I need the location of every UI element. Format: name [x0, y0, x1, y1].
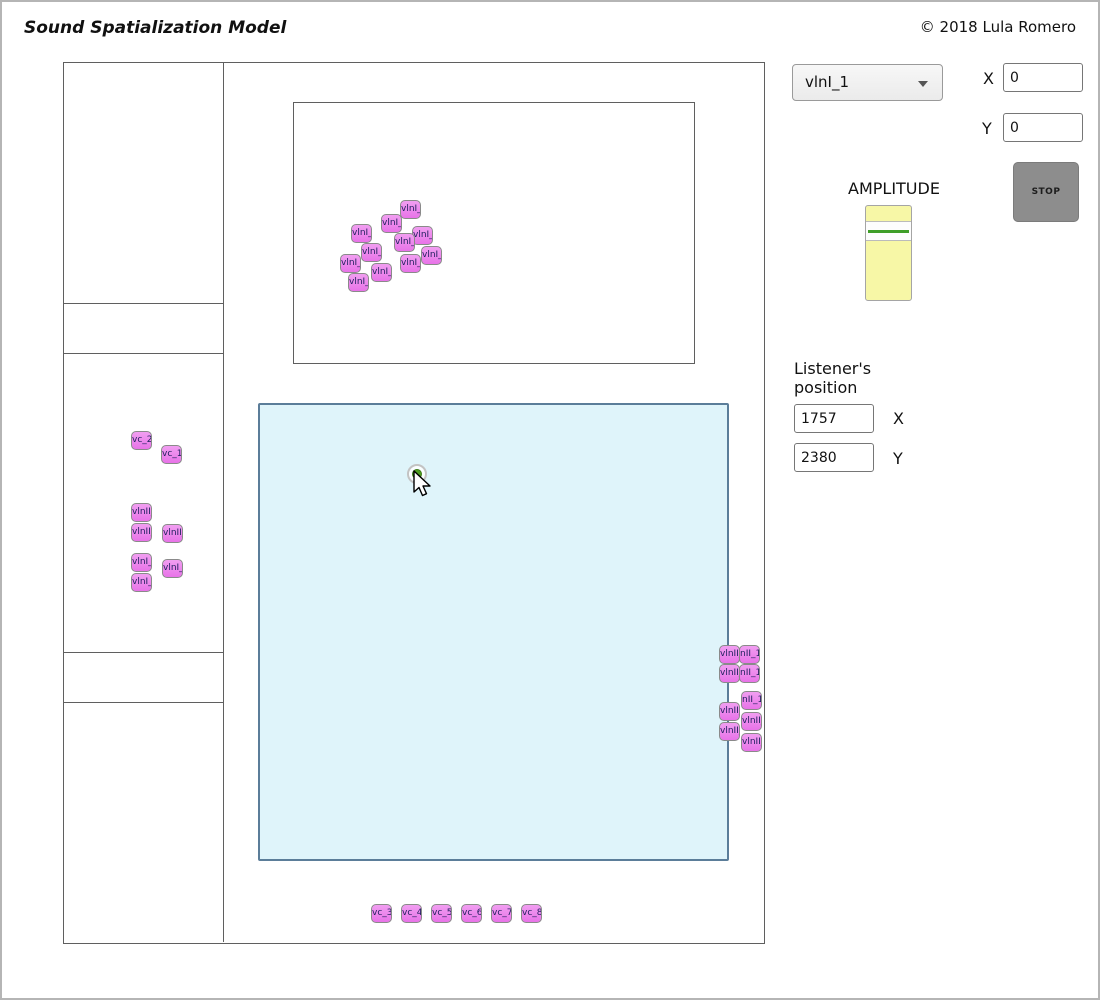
sound-object-nII_1[interactable]: nII_1: [741, 691, 762, 710]
source-y-input[interactable]: [1003, 113, 1083, 142]
sound-object-vlnII_4[interactable]: vlnII_4: [719, 664, 740, 683]
sound-object-vlnII_4[interactable]: vlnII_4: [719, 722, 740, 741]
sound-object-vc_4[interactable]: vc_4: [401, 904, 422, 923]
sound-object-vlnI_3[interactable]: vlnI_3: [131, 553, 152, 572]
sound-object-vlnI_1[interactable]: vlnI_1: [162, 559, 183, 578]
sound-object-vlnI_7[interactable]: vlnI_7: [421, 246, 442, 265]
sound-object-vlnI_4[interactable]: vlnI_4: [348, 273, 369, 292]
source-select-value: vlnI_1: [805, 73, 849, 91]
sound-object-vc_7[interactable]: vc_7: [491, 904, 512, 923]
stage-floor-area[interactable]: [258, 403, 729, 861]
stop-button[interactable]: STOP: [1013, 162, 1079, 222]
sound-object-vlnI_8[interactable]: vlnI_8: [340, 254, 361, 273]
sound-object-nII_1[interactable]: nII_1: [739, 645, 760, 664]
sound-object-vlnI_1[interactable]: vlnI_1: [381, 214, 402, 233]
listener-position-heading: Listener's position: [794, 359, 894, 397]
left-panel-line-2: [63, 353, 223, 354]
sound-object-vc_1[interactable]: vc_1: [161, 445, 182, 464]
sound-object-nII_1[interactable]: nII_1: [739, 664, 760, 683]
left-panel-line-1: [63, 303, 223, 304]
sound-object-vlnI_2[interactable]: vlnI_2: [131, 573, 152, 592]
chevron-down-icon: [918, 81, 928, 87]
sound-object-vlnI_1[interactable]: vlnI_1: [394, 233, 415, 252]
listener-y-label: Y: [893, 449, 903, 468]
sound-object-vlnI_5[interactable]: vlnI_5: [371, 263, 392, 282]
sound-object-vlnI_6[interactable]: vlnI_6: [400, 254, 421, 273]
left-panel-line-3: [63, 652, 223, 653]
sound-object-vlnII_3[interactable]: vlnII_3: [131, 503, 152, 522]
source-x-input[interactable]: [1003, 63, 1083, 92]
sound-object-vlnII_2[interactable]: vlnII_2: [131, 523, 152, 542]
sound-object-vc_5[interactable]: vc_5: [431, 904, 452, 923]
amplitude-slider-handle[interactable]: [866, 221, 911, 241]
listener-x-input[interactable]: [794, 404, 874, 433]
page-title: Sound Spatialization Model: [24, 18, 286, 38]
amplitude-slider[interactable]: [865, 205, 912, 301]
sound-object-vlnII_8[interactable]: vlnII_8: [741, 733, 762, 752]
source-select-dropdown[interactable]: vlnI_1: [792, 64, 943, 101]
sound-object-vlnII_1[interactable]: vlnII_1: [162, 524, 183, 543]
sound-object-vc_3[interactable]: vc_3: [371, 904, 392, 923]
listener-marker[interactable]: [407, 464, 427, 484]
listener-y-input[interactable]: [794, 443, 874, 472]
amplitude-slider-handle-line: [868, 230, 909, 233]
source-x-label: X: [983, 69, 994, 88]
sound-object-vc_6[interactable]: vc_6: [461, 904, 482, 923]
source-y-label: Y: [982, 119, 992, 138]
sound-object-vc_8[interactable]: vc_8: [521, 904, 542, 923]
sound-object-vlnI_1[interactable]: vlnI_1: [351, 224, 372, 243]
left-panel-line-4: [63, 702, 223, 703]
sound-object-vlnI_9[interactable]: vlnI_9: [361, 243, 382, 262]
sound-object-vlnII_9[interactable]: vlnII_9: [741, 712, 762, 731]
sound-object-vlnII_1[interactable]: vlnII_1: [719, 645, 740, 664]
copyright-text: © 2018 Lula Romero: [920, 18, 1076, 36]
listener-x-label: X: [893, 409, 904, 428]
app-window: Sound Spatialization Model © 2018 Lula R…: [0, 0, 1100, 1000]
sound-object-vlnI_1[interactable]: vlnI_1: [400, 200, 421, 219]
amplitude-label: AMPLITUDE: [848, 179, 940, 198]
listener-marker-dot: [412, 469, 422, 479]
left-panel-divider: [223, 62, 224, 942]
sound-object-vlnII_5[interactable]: vlnII_5: [719, 702, 740, 721]
sound-object-vc_2[interactable]: vc_2: [131, 431, 152, 450]
sound-object-vlnI_1[interactable]: vlnI_1: [412, 226, 433, 245]
